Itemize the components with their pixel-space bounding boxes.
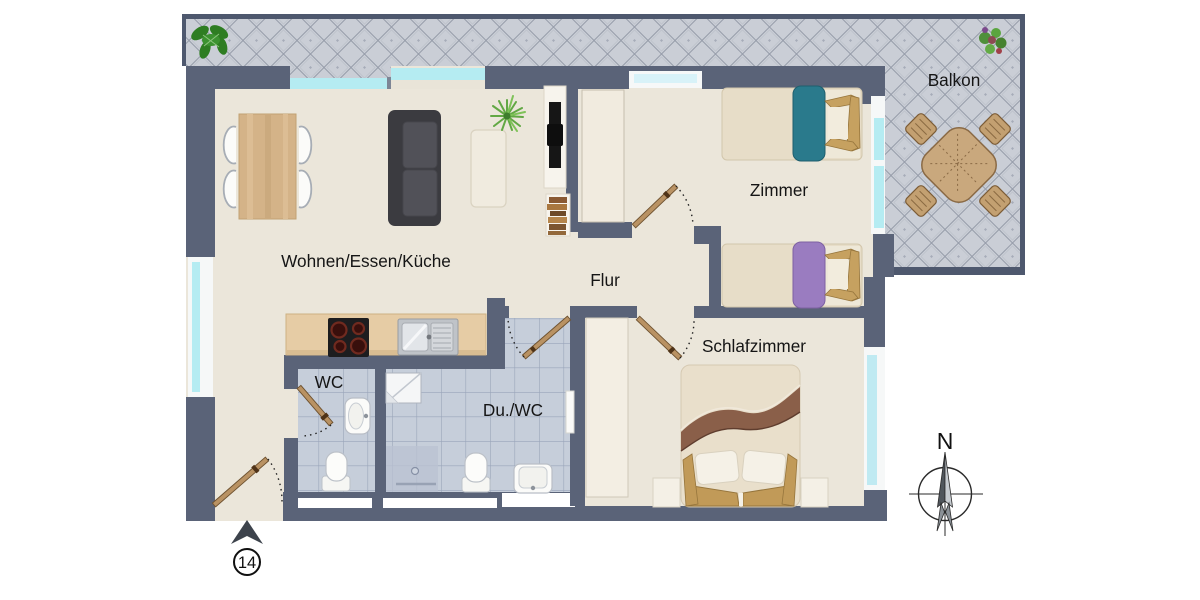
svg-text:Du./WC: Du./WC (483, 400, 543, 420)
svg-text:Balkon: Balkon (928, 70, 981, 90)
svg-text:N: N (937, 428, 954, 454)
svg-text:Zimmer: Zimmer (750, 180, 809, 200)
svg-text:Flur: Flur (590, 270, 620, 290)
svg-text:Wohnen/Essen/Küche: Wohnen/Essen/Küche (281, 251, 451, 271)
svg-text:14: 14 (238, 554, 256, 572)
svg-text:WC: WC (315, 372, 344, 392)
svg-text:Schlafzimmer: Schlafzimmer (702, 336, 806, 356)
